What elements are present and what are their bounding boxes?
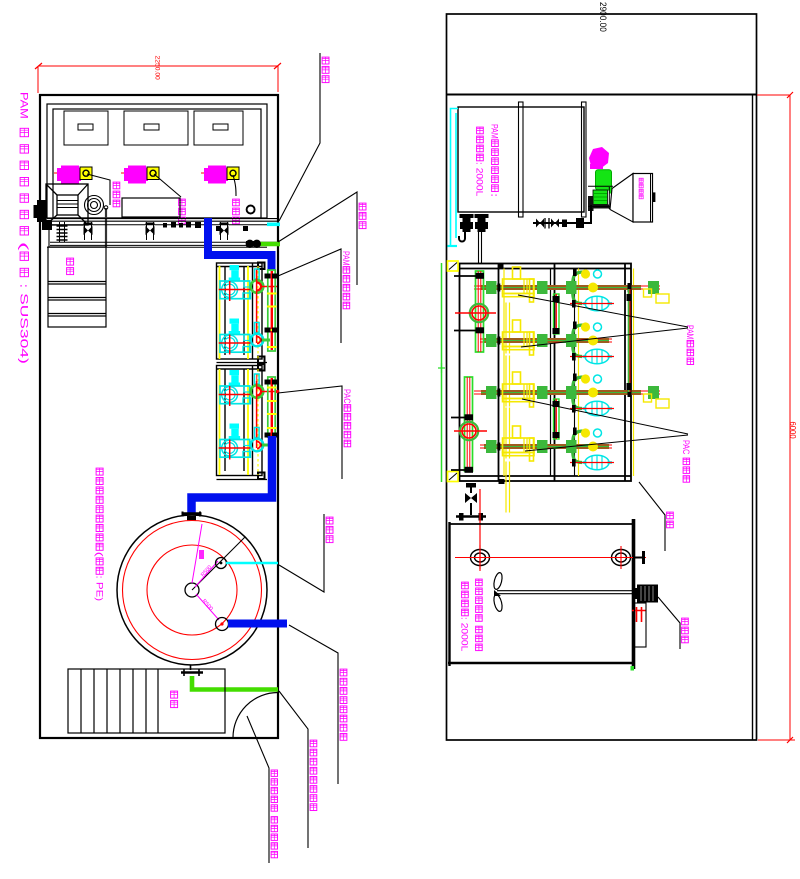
svg-text:2900.00: 2900.00 bbox=[598, 2, 608, 32]
svg-text:6000: 6000 bbox=[788, 422, 798, 439]
svg-text:(: ( bbox=[94, 552, 105, 559]
svg-text:R500: R500 bbox=[201, 598, 214, 612]
svg-text::: : bbox=[490, 193, 500, 198]
svg-text:: 2000L: : 2000L bbox=[475, 162, 485, 196]
svg-text:2250.00: 2250.00 bbox=[153, 56, 160, 81]
svg-text:: 2000L: : 2000L bbox=[460, 617, 470, 651]
svg-text:PAM: PAM bbox=[341, 251, 351, 266]
svg-text:PAC: PAC bbox=[342, 389, 352, 404]
svg-text:: PE): : PE) bbox=[94, 576, 105, 602]
svg-text:PAM: PAM bbox=[490, 124, 500, 139]
svg-text:PAC: PAC bbox=[681, 440, 691, 455]
svg-text:PAM: PAM bbox=[685, 325, 695, 339]
svg-text:PAM: PAM bbox=[17, 92, 29, 119]
svg-text:(: ( bbox=[17, 242, 29, 251]
svg-text:: SUS304): : SUS304) bbox=[17, 283, 29, 364]
